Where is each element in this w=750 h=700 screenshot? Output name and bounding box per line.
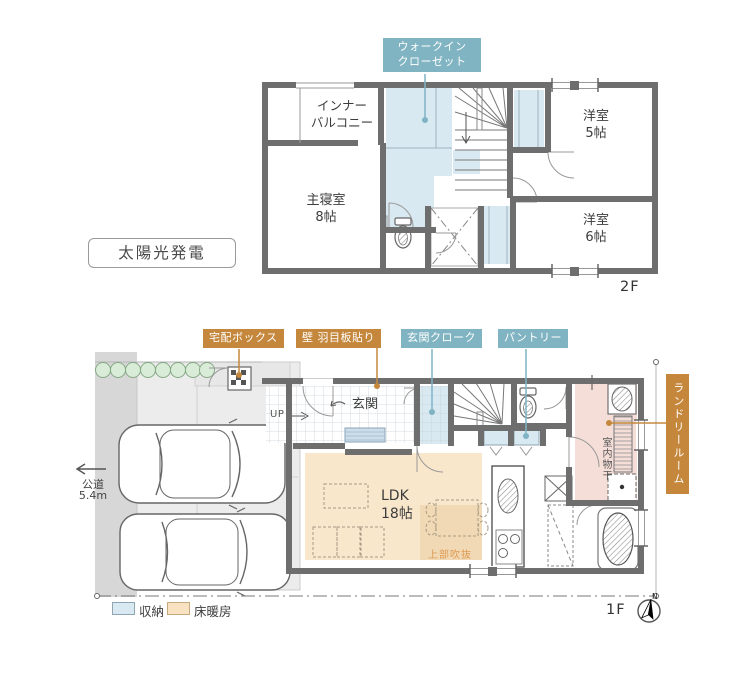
indoor-drying-label: 室内物干: [598, 437, 613, 481]
void-above-label: 上部吹抜: [428, 546, 472, 561]
kitchen-counter: [492, 466, 524, 567]
entrance-opening: [303, 376, 333, 386]
void-2f: [431, 208, 478, 266]
stairs-2f: [455, 88, 510, 190]
room-label-master-bedroom: 主寝室 8帖: [294, 192, 358, 226]
compass-icon: [638, 598, 660, 622]
callout-entrance-cloak: 玄関クローク: [401, 329, 482, 348]
callout-pantry: パントリー: [498, 329, 568, 348]
legend-floor-heating-label: 床暖房: [194, 601, 232, 620]
callout-delivery-box: 宅配ボックス: [203, 329, 284, 348]
road-width-label: 5.4m: [76, 489, 110, 502]
legend-storage-label: 収納: [139, 601, 164, 620]
solar-power-badge: 太陽光発電: [88, 238, 236, 268]
room-label-western-room-6: 洋室 6帖: [568, 212, 624, 246]
toilet-icon-1f: [520, 387, 566, 418]
car-icon-1: [119, 419, 285, 509]
plan-1f: [77, 339, 666, 622]
room-label-inner-balcony: インナー バルコニー: [288, 98, 396, 131]
compass-north-label: N: [652, 592, 658, 601]
pantry-box-1: [484, 430, 509, 445]
callout-laundry-room: ランドリールーム: [666, 374, 689, 494]
room-label-entrance: 玄関: [352, 396, 378, 413]
legend-storage-swatch: [112, 602, 135, 615]
legend-floor-heating-swatch: [167, 602, 190, 615]
callout-walk-in-closet: ウォークイン クローゼット: [383, 38, 481, 72]
stairs-up-label: UP: [270, 409, 284, 420]
callout-wall-paneling: 壁 羽目板貼り: [296, 329, 381, 348]
car-icon-2: [120, 508, 290, 596]
room-label-ldk: LDK 18帖: [381, 487, 413, 524]
floor-label-2f: 2F: [620, 279, 640, 295]
room-label-western-room-5: 洋室 5帖: [568, 108, 624, 142]
bathtub-icon: [577, 505, 638, 570]
floor-label-1f: 1F: [606, 602, 626, 618]
